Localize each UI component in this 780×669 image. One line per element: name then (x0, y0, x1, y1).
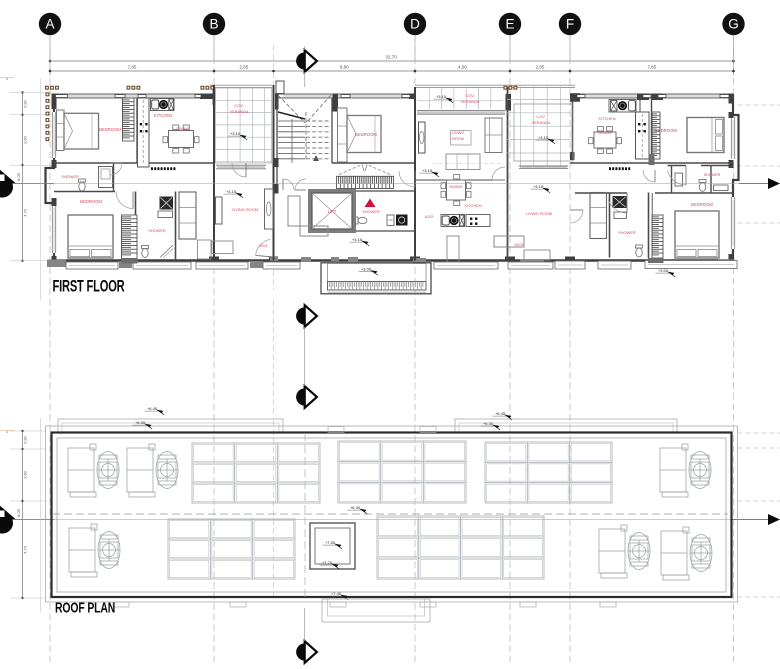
svg-text:VERANDA: VERANDA (230, 109, 249, 114)
svg-text:0,80: 0,80 (24, 100, 28, 107)
svg-text:E: E (505, 17, 514, 32)
svg-text:KITCHEN: KITCHEN (598, 116, 615, 121)
svg-text:+7.40: +7.40 (331, 591, 342, 596)
svg-text:+6.30: +6.30 (135, 420, 146, 425)
svg-text:COV.: COV. (536, 114, 545, 119)
svg-text:+3.10: +3.10 (538, 135, 549, 140)
svg-text:7,85: 7,85 (647, 65, 656, 70)
svg-text:+6.30: +6.30 (483, 421, 494, 426)
svg-text:+3.00: +3.00 (361, 267, 372, 272)
svg-text:SHOWER: SHOWER (362, 209, 380, 214)
svg-text:+6.45: +6.45 (495, 411, 506, 416)
svg-text:LIVING ROOM: LIVING ROOM (526, 211, 552, 216)
svg-text:DINING: DINING (598, 131, 611, 135)
svg-text:COV.: COV. (465, 93, 474, 98)
svg-text:BEDROOM: BEDROOM (655, 128, 677, 133)
svg-text:ROOF PLAN: ROOF PLAN (55, 600, 115, 616)
svg-text:+6.45: +6.45 (147, 406, 158, 411)
svg-text:A203: A203 (514, 242, 523, 247)
svg-text:FIRST FLOOR: FIRST FLOOR (53, 277, 126, 296)
svg-text:8,05: 8,05 (17, 509, 21, 516)
svg-text:COV.: COV. (234, 103, 243, 108)
svg-text:4,70: 4,70 (24, 546, 28, 553)
svg-text:VERANDA: VERANDA (461, 99, 480, 104)
svg-text:0,80: 0,80 (24, 436, 28, 443)
svg-text:4,50: 4,50 (458, 65, 467, 70)
svg-text:2,85: 2,85 (536, 65, 545, 70)
svg-text:ROOM: ROOM (452, 136, 464, 141)
svg-text:+7.70: +7.70 (322, 560, 333, 565)
svg-text:SHOWER: SHOWER (618, 230, 636, 235)
svg-text:+3.10: +3.10 (436, 94, 447, 99)
svg-text:+3.15: +3.15 (352, 237, 363, 242)
svg-text:BEDROOM: BEDROOM (99, 127, 121, 132)
svg-text:BEDROOM: BEDROOM (691, 202, 713, 207)
svg-text:D: D (410, 17, 420, 32)
svg-text:8,05: 8,05 (17, 173, 21, 180)
svg-text:G: G (728, 17, 739, 32)
svg-text:2,85: 2,85 (239, 65, 248, 70)
svg-text:2,60: 2,60 (24, 471, 28, 478)
svg-text:DINING: DINING (449, 185, 462, 189)
svg-text:F: F (566, 17, 574, 32)
svg-text:6,80: 6,80 (340, 65, 349, 70)
svg-text:VERANDA: VERANDA (532, 120, 551, 125)
svg-text:2,60: 2,60 (24, 136, 28, 143)
svg-text:+3.15: +3.15 (226, 189, 237, 194)
svg-text:+3.10: +3.10 (230, 131, 241, 136)
svg-text:KITCHEN: KITCHEN (464, 203, 481, 208)
svg-text:32,70: 32,70 (385, 55, 397, 60)
svg-text:+7.50: +7.50 (325, 540, 336, 545)
svg-text:+3.15: +3.15 (422, 168, 433, 173)
svg-text:4,70: 4,70 (24, 209, 28, 216)
svg-text:KITCHEN: KITCHEN (154, 113, 172, 118)
svg-text:+3.00: +3.00 (658, 268, 669, 273)
svg-text:A202: A202 (425, 215, 434, 219)
svg-text:LIFT: LIFT (328, 209, 337, 214)
svg-text:BEDROOM: BEDROOM (355, 132, 377, 137)
svg-text:7,85: 7,85 (128, 65, 137, 70)
svg-text:SHOWER: SHOWER (148, 228, 166, 233)
svg-text:BEDROOM: BEDROOM (80, 199, 102, 204)
svg-text:SHOWER: SHOWER (704, 173, 721, 177)
svg-text:B: B (209, 17, 218, 32)
svg-text:+6.30: +6.30 (350, 505, 361, 510)
svg-text:+3.15: +3.15 (533, 184, 544, 189)
svg-text:SHOWER: SHOWER (61, 174, 79, 179)
svg-text:DINING: DINING (176, 127, 189, 131)
svg-text:LIVING ROOM: LIVING ROOM (232, 207, 258, 212)
svg-text:A: A (45, 17, 54, 32)
